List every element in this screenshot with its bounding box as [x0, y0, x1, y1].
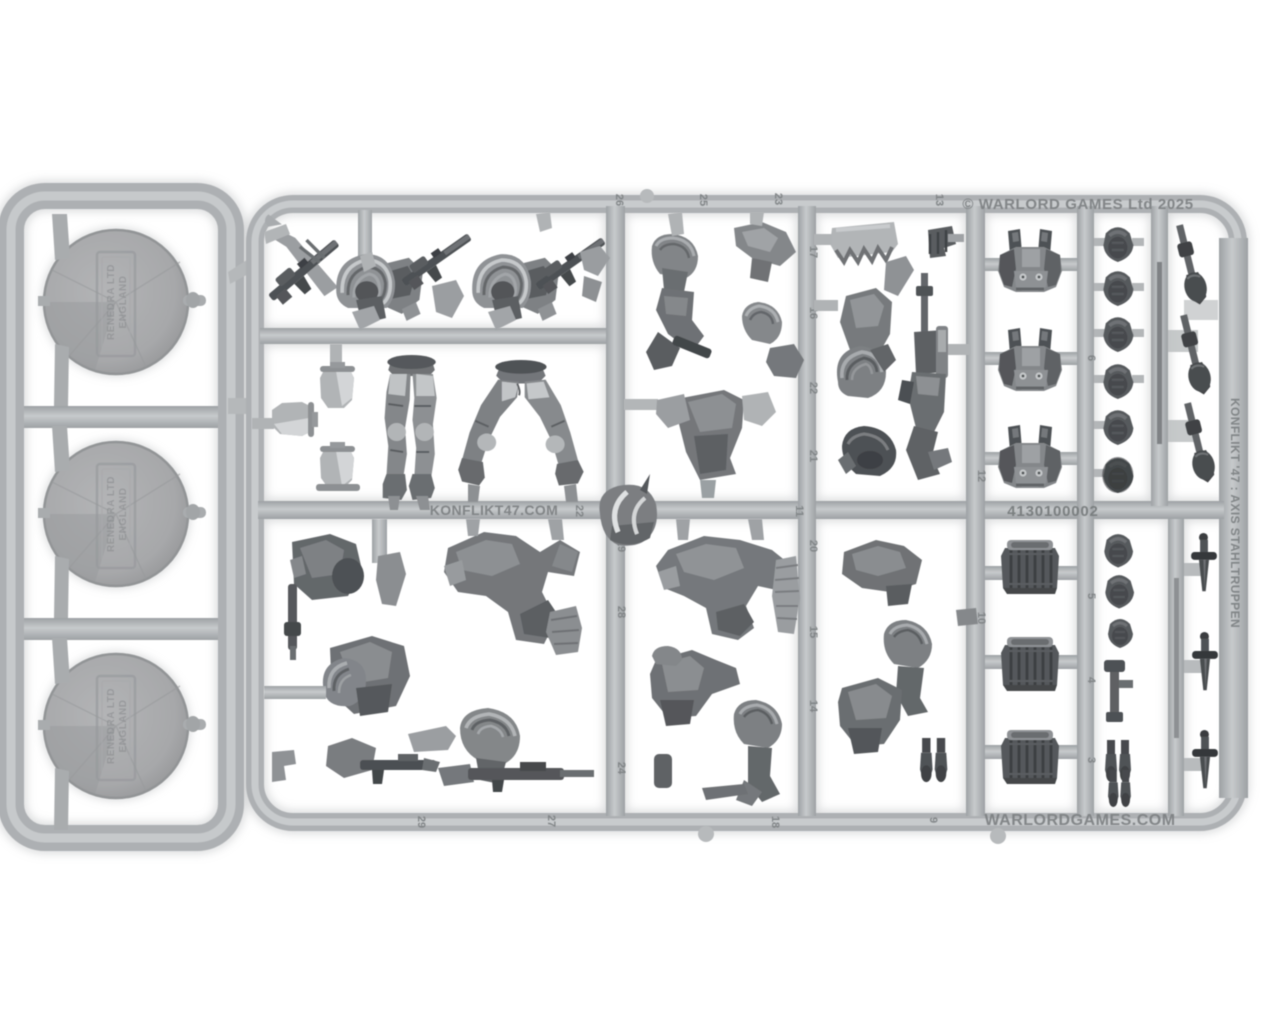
svg-text:WARLORDGAMES.COM: WARLORDGAMES.COM: [984, 812, 1175, 829]
svg-text:13: 13: [933, 194, 945, 206]
svg-text:26: 26: [613, 194, 625, 206]
svg-text:18: 18: [769, 816, 781, 828]
svg-text:15: 15: [807, 626, 819, 638]
svg-text:22: 22: [573, 505, 585, 517]
svg-text:9: 9: [927, 817, 939, 823]
svg-text:22: 22: [807, 382, 819, 394]
svg-text:24: 24: [615, 762, 627, 775]
svg-text:12: 12: [975, 470, 987, 482]
svg-text:4: 4: [1085, 677, 1097, 684]
svg-text:4130100002: 4130100002: [1007, 503, 1098, 520]
svg-text:28: 28: [615, 606, 627, 618]
svg-text:20: 20: [807, 540, 819, 552]
svg-text:KONFLIKT47.COM: KONFLIKT47.COM: [430, 502, 559, 518]
svg-text:KONFLIKT '47 : AXIS STAHLTRUPP: KONFLIKT '47 : AXIS STAHLTRUPPEN: [1228, 398, 1242, 628]
svg-text:21: 21: [807, 450, 819, 462]
svg-text:17: 17: [807, 246, 819, 258]
svg-text:6: 6: [1085, 355, 1097, 361]
svg-text:11: 11: [793, 505, 805, 517]
svg-text:5: 5: [1085, 593, 1097, 599]
svg-text:3: 3: [1085, 757, 1097, 763]
svg-text:14: 14: [807, 700, 819, 713]
svg-text:23: 23: [772, 193, 784, 205]
svg-text:27: 27: [545, 815, 557, 827]
svg-text:© WARLORD GAMES Ltd 2025: © WARLORD GAMES Ltd 2025: [962, 196, 1193, 213]
svg-text:29: 29: [415, 816, 427, 828]
svg-text:25: 25: [697, 194, 709, 206]
